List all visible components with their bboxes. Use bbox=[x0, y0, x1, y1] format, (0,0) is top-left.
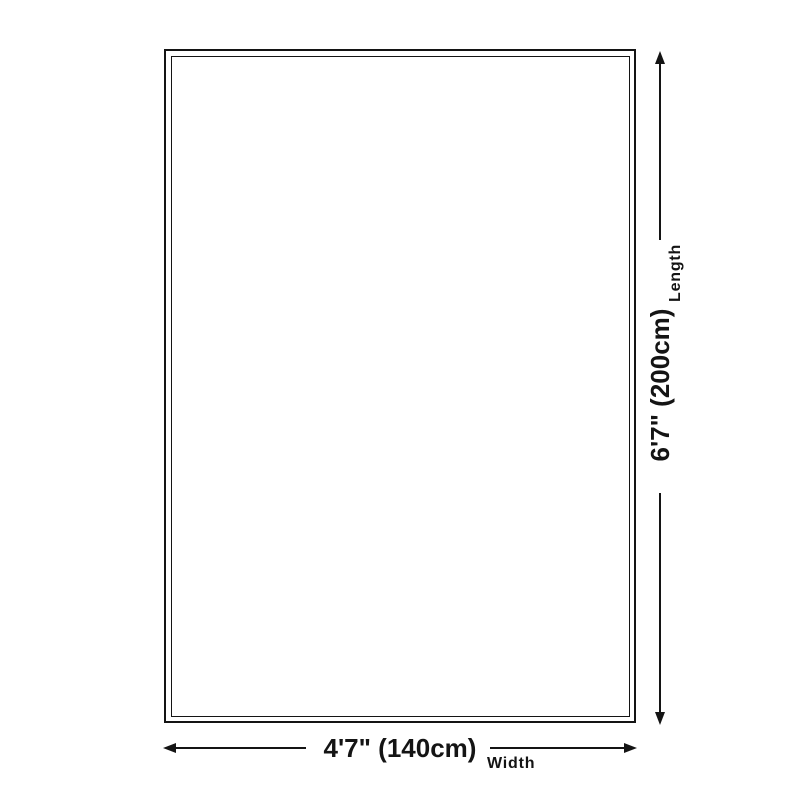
length-dimension-line-bottom bbox=[659, 493, 662, 712]
length-label: Length bbox=[667, 244, 685, 302]
arrow-down-icon bbox=[655, 712, 665, 725]
rug-outline bbox=[164, 49, 636, 723]
width-label: Width bbox=[487, 755, 535, 773]
length-value: 6'7" (200cm) bbox=[645, 305, 675, 465]
length-dimension-line-top bbox=[659, 64, 662, 240]
width-dimension-line-left bbox=[173, 747, 306, 750]
rug-inner-border bbox=[171, 56, 630, 717]
width-dimension-line-right bbox=[490, 747, 624, 750]
width-dimension-arrow: 4'7" (140cm) Width bbox=[163, 742, 637, 790]
size-diagram: 4'7" (140cm) Width 6'7" (200cm) Length bbox=[0, 0, 800, 800]
width-value: 4'7" (140cm) bbox=[313, 733, 487, 763]
length-dimension-arrow: 6'7" (200cm) Length bbox=[654, 51, 702, 725]
arrow-right-icon bbox=[624, 743, 637, 753]
arrow-up-icon bbox=[655, 51, 665, 64]
